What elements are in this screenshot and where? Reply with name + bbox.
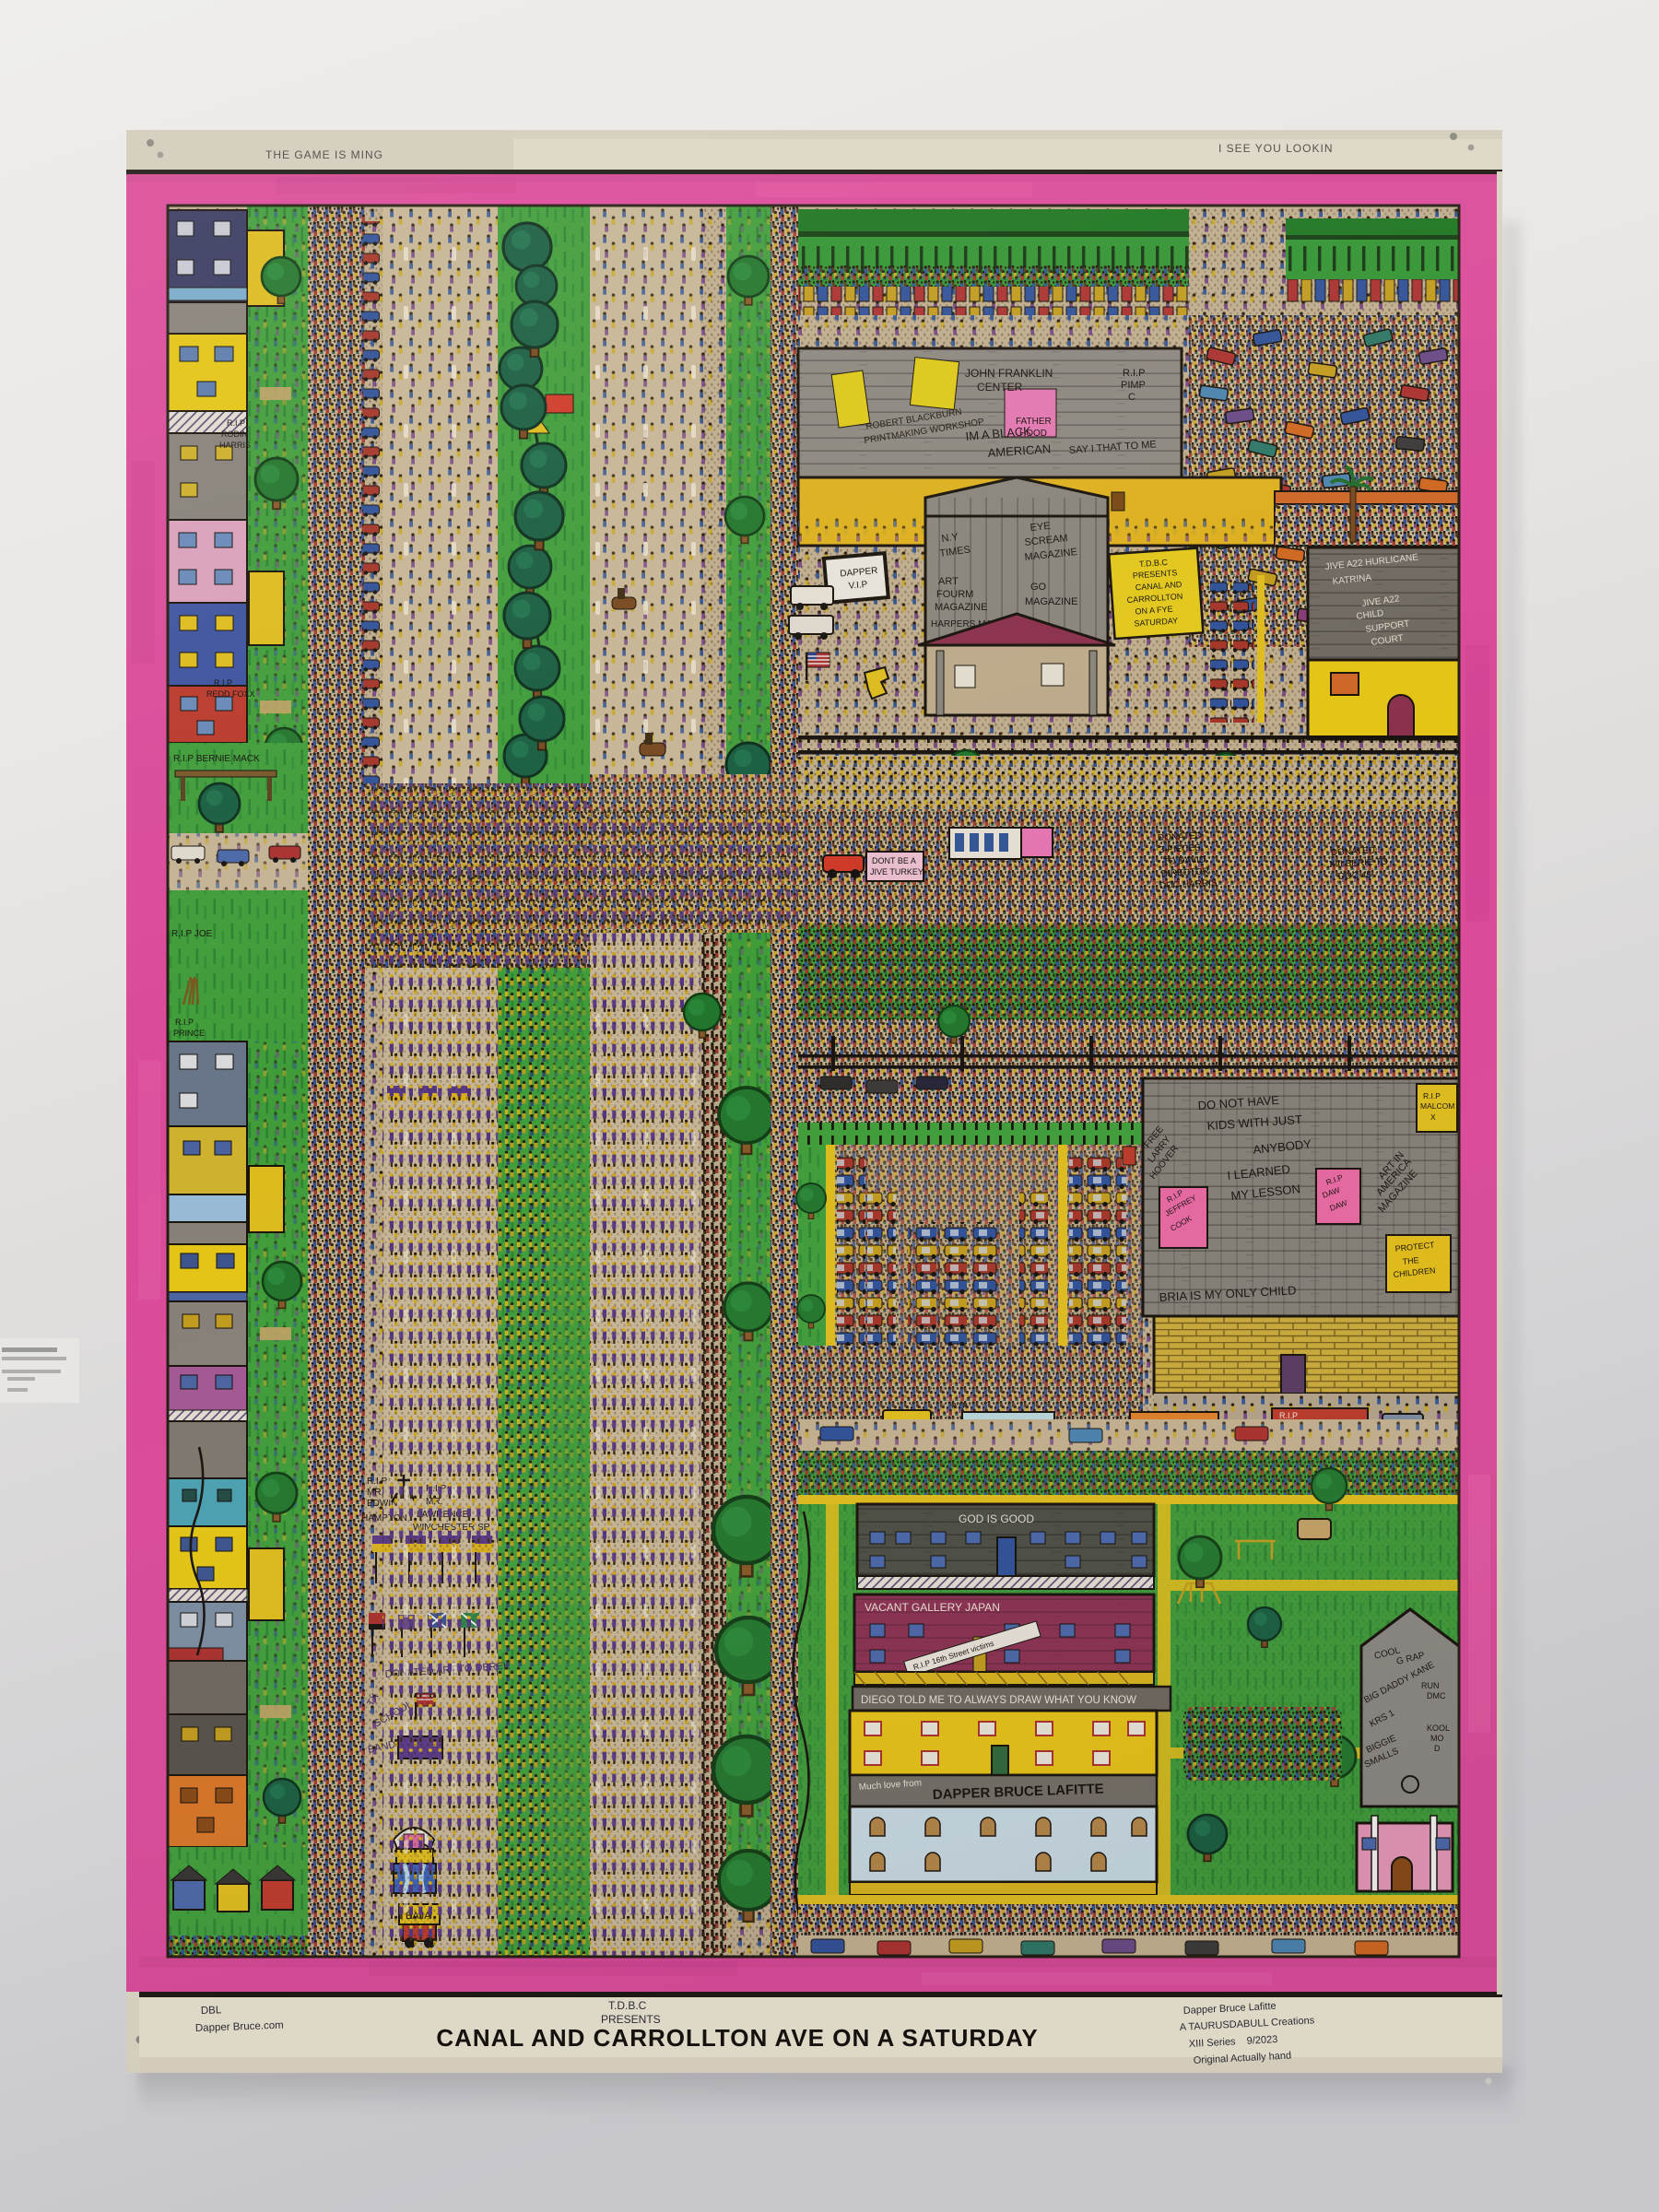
svg-text:HARRIS: HARRIS — [219, 441, 251, 450]
svg-text:RODIN: RODIN — [221, 429, 248, 439]
svg-text:DBL: DBL — [201, 2005, 222, 2017]
svg-text:THE GAME IS MING: THE GAME IS MING — [265, 148, 383, 161]
svg-text:CANAL AND CARROLLTON AVE O: CANAL AND CARROLLTON AVE ON A SATURDAY — [436, 2024, 1038, 2052]
svg-text:REDD FOXX: REDD FOXX — [206, 689, 255, 699]
svg-text:R.I.P: R.I.P — [214, 678, 232, 688]
svg-text:T.D.B.C: T.D.B.C — [608, 1999, 647, 2012]
svg-text:R.I.P: R.I.P — [227, 418, 245, 428]
svg-text:I SEE YOU LOOKIN: I SEE YOU LOOKIN — [1218, 142, 1333, 155]
